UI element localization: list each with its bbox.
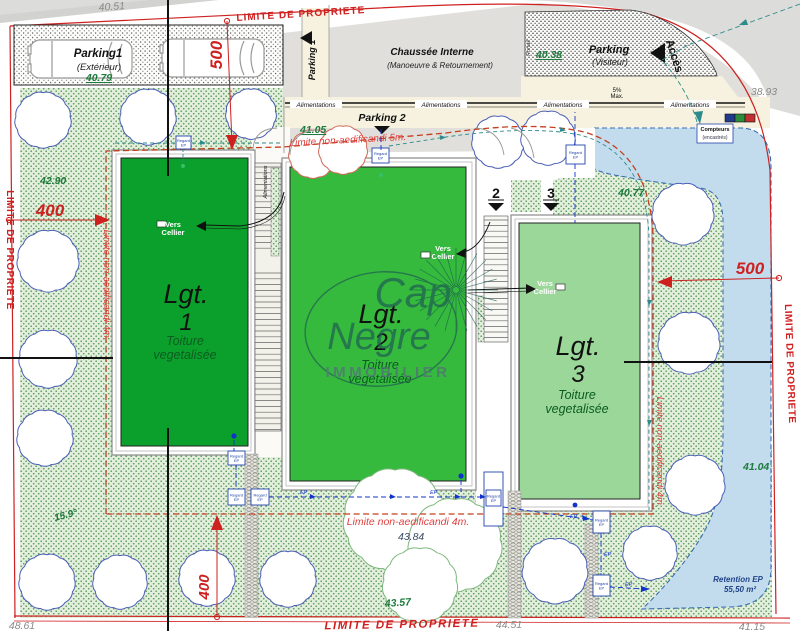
svg-text:EP: EP <box>599 522 605 527</box>
svg-text:55,50 m²: 55,50 m² <box>724 585 756 594</box>
svg-text:EP: EP <box>430 490 438 496</box>
svg-text:EP: EP <box>234 497 240 502</box>
svg-text:Alimentations: Alimentations <box>263 165 269 199</box>
svg-text:Cap: Cap <box>374 269 451 316</box>
svg-text:43.57: 43.57 <box>383 596 412 610</box>
svg-text:Portail: Portail <box>526 39 532 55</box>
svg-text:500: 500 <box>207 40 226 69</box>
svg-text:42.90: 42.90 <box>39 175 66 187</box>
svg-text:Parking1: Parking1 <box>74 48 123 60</box>
svg-text:Toiture: Toiture <box>558 388 596 402</box>
svg-text:LIMITE DE PROPRIETE: LIMITE DE PROPRIETE <box>324 618 479 631</box>
svg-text:Compteurs: Compteurs <box>700 127 729 133</box>
svg-text:44.51: 44.51 <box>496 619 522 631</box>
svg-text:IMMOBILIER: IMMOBILIER <box>326 364 451 381</box>
svg-text:Chaussée Interne: Chaussée Interne <box>390 47 474 58</box>
svg-text:Cellier: Cellier <box>162 228 185 237</box>
svg-text:(encastrés): (encastrés) <box>702 135 727 141</box>
svg-text:EP: EP <box>257 497 263 502</box>
svg-text:400: 400 <box>35 201 65 220</box>
svg-text:1: 1 <box>179 309 192 336</box>
svg-text:500: 500 <box>736 259 765 278</box>
svg-text:Parking 1: Parking 1 <box>307 40 317 81</box>
svg-text:Limite non-aedificandi 4m.: Limite non-aedificandi 4m. <box>654 397 665 508</box>
svg-text:EP: EP <box>234 458 240 463</box>
svg-text:Alimentations: Alimentations <box>420 102 461 109</box>
svg-text:EP: EP <box>491 498 497 503</box>
svg-text:Limite non-aedificandi 4m.: Limite non-aedificandi 4m. <box>347 516 470 528</box>
svg-text:Limite non-aedificandi 4m.: Limite non-aedificandi 4m. <box>101 230 112 341</box>
svg-text:LIMITE DE PROPRIETE: LIMITE DE PROPRIETE <box>4 190 15 310</box>
svg-text:40.51: 40.51 <box>98 0 125 14</box>
svg-text:EP: EP <box>573 155 579 160</box>
svg-text:3: 3 <box>547 185 555 201</box>
svg-text:EP: EP <box>300 490 308 496</box>
svg-text:vegetalisée: vegetalisée <box>545 402 608 416</box>
svg-text:41.04: 41.04 <box>742 461 769 473</box>
svg-text:EP: EP <box>570 514 578 520</box>
svg-text:40.38: 40.38 <box>535 49 562 61</box>
svg-text:EP: EP <box>599 586 605 591</box>
svg-text:Parking 2: Parking 2 <box>358 112 405 124</box>
svg-text:Parking: Parking <box>589 44 630 56</box>
svg-text:40.77: 40.77 <box>617 187 645 199</box>
svg-text:Retention EP: Retention EP <box>713 575 763 584</box>
svg-text:Lgt.: Lgt. <box>163 279 208 309</box>
svg-text:Toiture: Toiture <box>166 334 204 348</box>
svg-text:Alimentations: Alimentations <box>542 102 583 109</box>
svg-text:Cellier: Cellier <box>432 252 455 261</box>
svg-text:(Manoeuvre & Retournement): (Manoeuvre & Retournement) <box>387 61 493 70</box>
svg-text:3: 3 <box>571 361 585 388</box>
svg-text:400: 400 <box>196 574 213 601</box>
svg-text:(Visiteur): (Visiteur) <box>592 57 628 67</box>
svg-text:EP: EP <box>625 582 633 588</box>
svg-text:40.79: 40.79 <box>85 72 112 84</box>
svg-text:EP: EP <box>604 552 612 558</box>
svg-text:43.84: 43.84 <box>398 531 424 543</box>
svg-text:Negre: Negre <box>327 316 431 358</box>
svg-text:38.93: 38.93 <box>751 86 777 98</box>
svg-text:Max.: Max. <box>610 94 623 100</box>
svg-text:Alimentations: Alimentations <box>295 102 336 109</box>
svg-text:48.61: 48.61 <box>9 620 35 631</box>
svg-text:EP: EP <box>378 156 384 161</box>
svg-text:2: 2 <box>492 185 500 201</box>
svg-text:EP: EP <box>181 143 187 148</box>
svg-text:Lgt.: Lgt. <box>555 331 600 361</box>
svg-text:41.15: 41.15 <box>739 621 765 631</box>
svg-text:vegetalisée: vegetalisée <box>153 348 216 362</box>
svg-text:Cellier: Cellier <box>534 287 557 296</box>
